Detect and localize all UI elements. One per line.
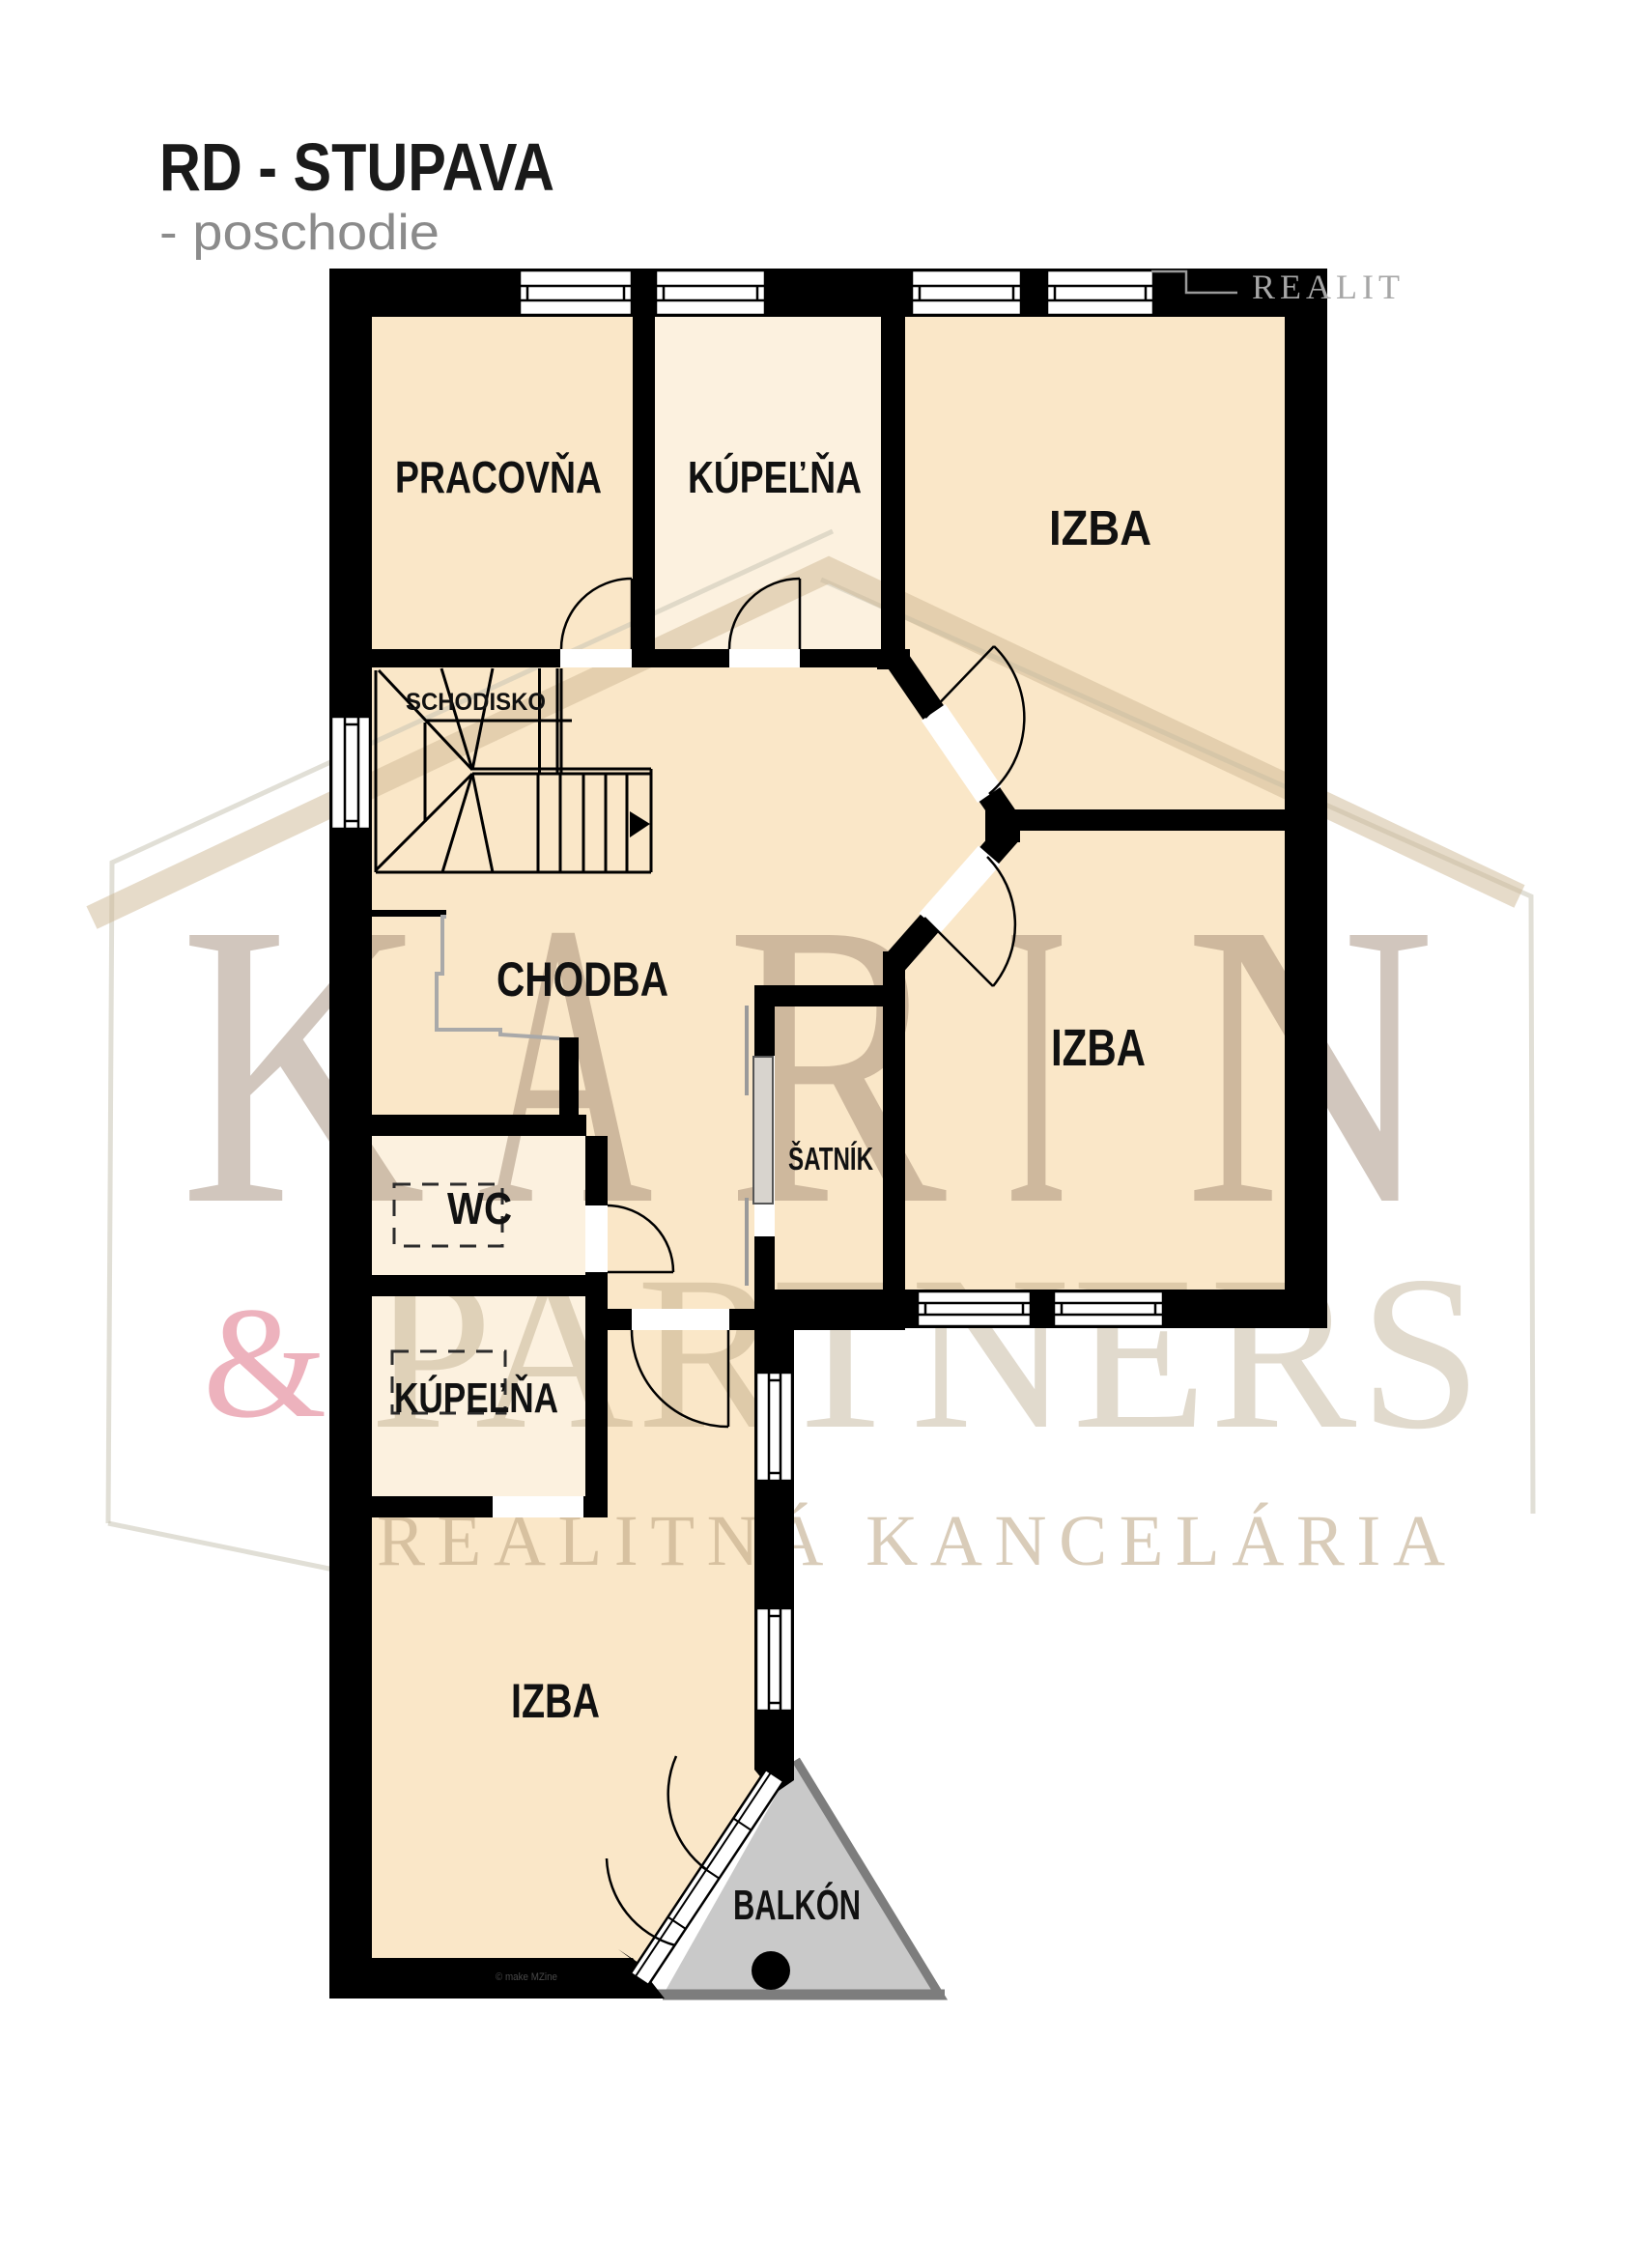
svg-text:BALKÓN: BALKÓN (733, 1881, 861, 1929)
svg-text:SCHODISKO: SCHODISKO (406, 689, 546, 716)
svg-text:PRACOVŇA: PRACOVŇA (395, 452, 602, 502)
svg-text:REALIT: REALIT (1252, 268, 1405, 306)
svg-text:&: & (203, 1274, 326, 1451)
svg-text:RD - STUPAVA: RD - STUPAVA (159, 129, 554, 205)
svg-text:CHODBA: CHODBA (497, 952, 668, 1006)
svg-text:ŠATNÍK: ŠATNÍK (788, 1140, 873, 1177)
svg-text:WC: WC (447, 1183, 512, 1233)
svg-text:IZBA: IZBA (1051, 1019, 1146, 1077)
svg-text:KÚPEĽŇA: KÚPEĽŇA (394, 1374, 558, 1422)
svg-text:K: K (180, 839, 426, 1289)
svg-text:KÚPEĽŇA: KÚPEĽŇA (688, 452, 862, 502)
svg-text:© make MZine: © make MZine (496, 1971, 557, 1983)
svg-text:IZBA: IZBA (1049, 500, 1151, 555)
svg-text:IZBA: IZBA (511, 1674, 600, 1728)
svg-text:- poschodie: - poschodie (159, 205, 440, 261)
